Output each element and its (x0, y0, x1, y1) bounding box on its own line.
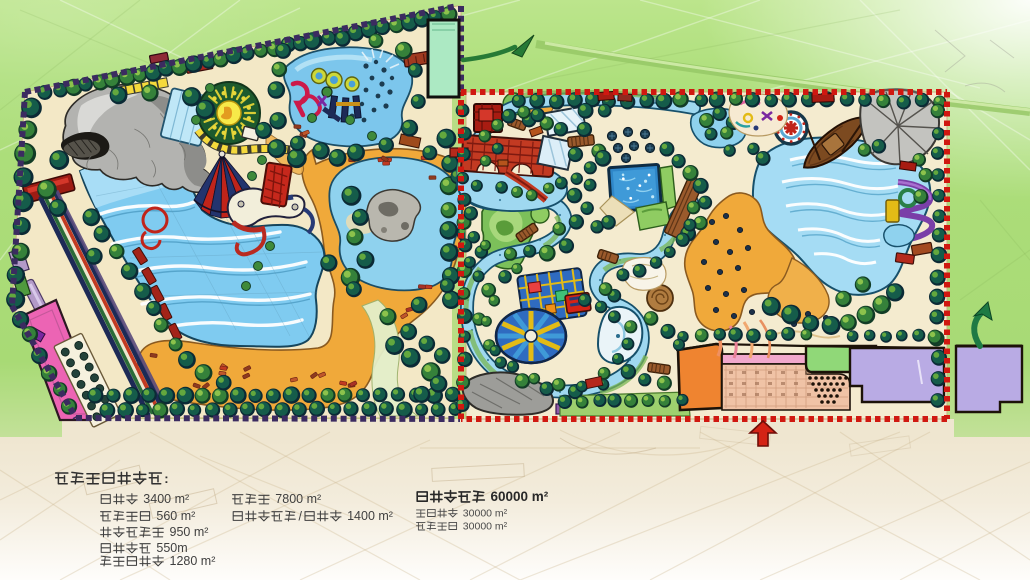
svg-text:3400 m²: 3400 m² (143, 492, 189, 506)
svg-text:1280 m²: 1280 m² (170, 554, 216, 568)
svg-text:60000 m²: 60000 m² (491, 489, 549, 504)
svg-text:30000 m²: 30000 m² (463, 507, 508, 519)
svg-text:550m: 550m (156, 541, 187, 555)
svg-text:/: / (299, 509, 303, 523)
svg-text::: : (164, 471, 168, 486)
svg-text:30000 m²: 30000 m² (463, 520, 508, 532)
svg-text:1400 m²: 1400 m² (347, 509, 393, 523)
svg-text:7800 m²: 7800 m² (275, 492, 321, 506)
svg-text:950 m²: 950 m² (170, 525, 209, 539)
svg-text:560 m²: 560 m² (156, 509, 195, 523)
